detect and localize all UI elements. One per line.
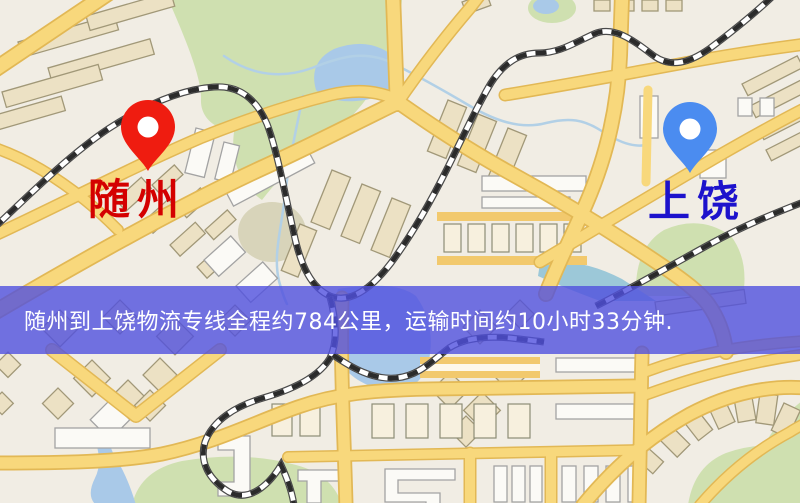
- route-info-text: 随州到上饶物流专线全程约784公里，运输时间约10小时33分钟.: [24, 304, 673, 336]
- logistics-route-map: 随州到上饶物流专线全程约784公里，运输时间约10小时33分钟. 随州 上饶: [0, 0, 800, 503]
- origin-city-label: 随州: [88, 179, 186, 221]
- route-info-banner: 随州到上饶物流专线全程约784公里，运输时间约10小时33分钟.: [0, 286, 800, 354]
- map-canvas: [0, 0, 800, 503]
- destination-city-label: 上饶: [648, 181, 746, 223]
